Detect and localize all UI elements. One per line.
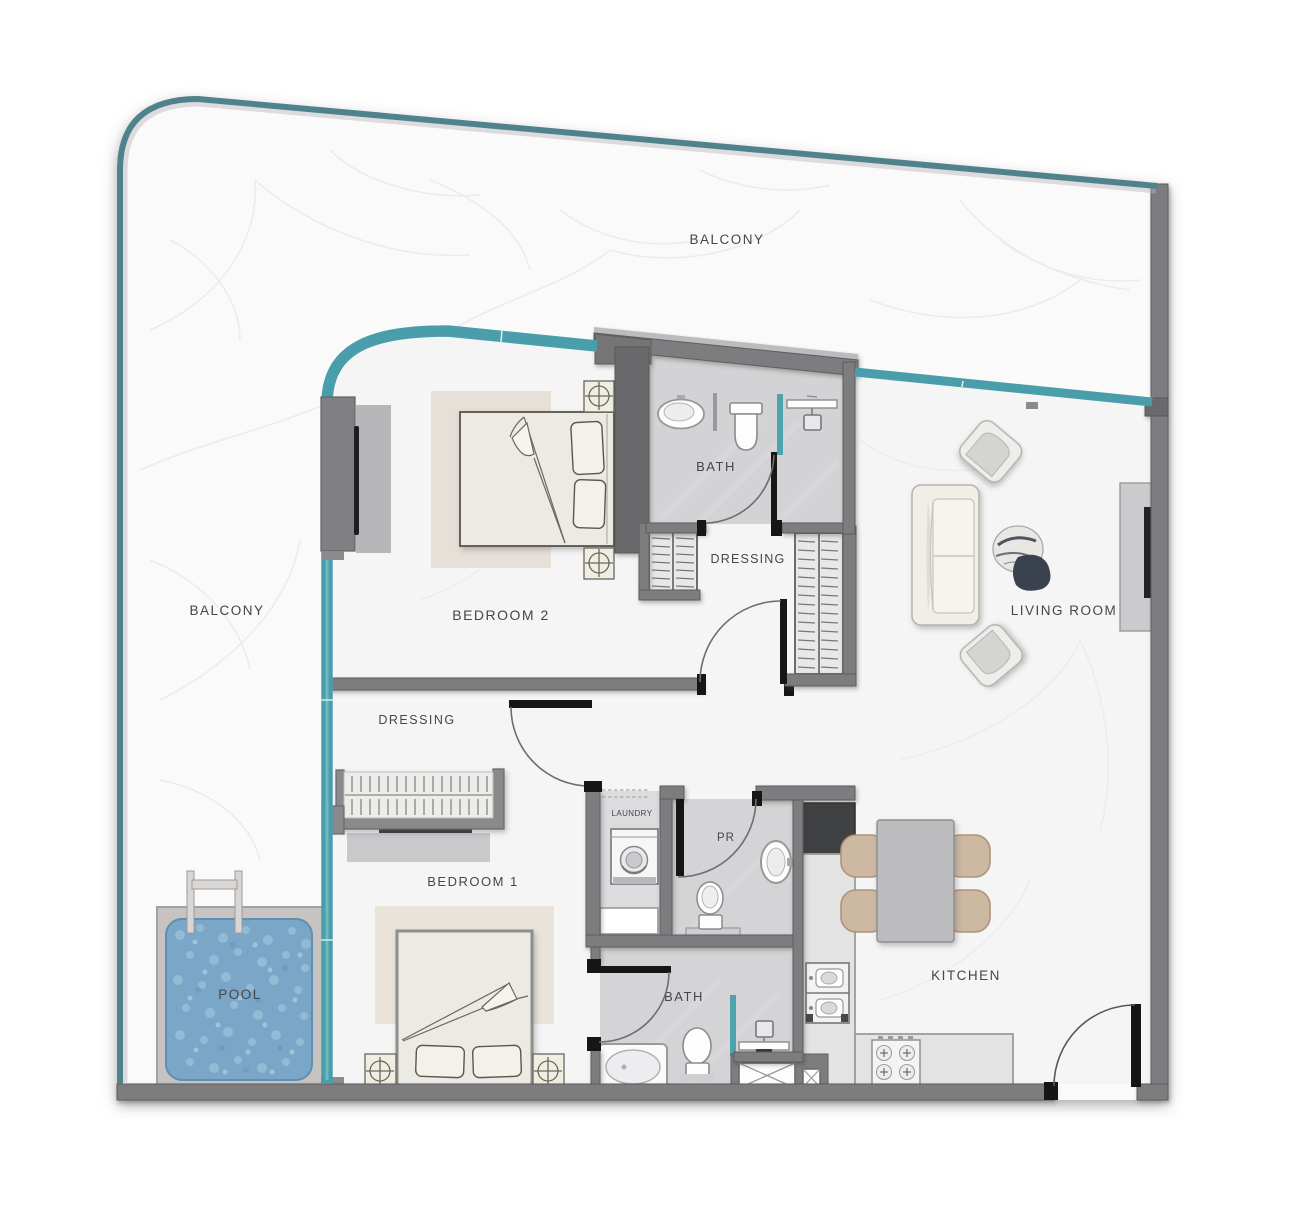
svg-text:DRESSING: DRESSING [711, 552, 786, 566]
svg-text:DRESSING: DRESSING [378, 713, 455, 727]
svg-text:LAUNDRY: LAUNDRY [612, 809, 653, 818]
svg-text:BALCONY: BALCONY [689, 232, 764, 247]
svg-text:PR: PR [717, 832, 735, 844]
svg-text:BALCONY: BALCONY [189, 603, 264, 618]
svg-text:KITCHEN: KITCHEN [931, 968, 1001, 983]
svg-text:BATH: BATH [664, 989, 704, 1004]
svg-text:BATH: BATH [696, 459, 736, 474]
svg-text:LIVING ROOM: LIVING ROOM [1011, 603, 1118, 618]
svg-text:POOL: POOL [218, 987, 262, 1002]
svg-text:BEDROOM 1: BEDROOM 1 [427, 874, 519, 889]
svg-text:BEDROOM 2: BEDROOM 2 [452, 607, 550, 623]
